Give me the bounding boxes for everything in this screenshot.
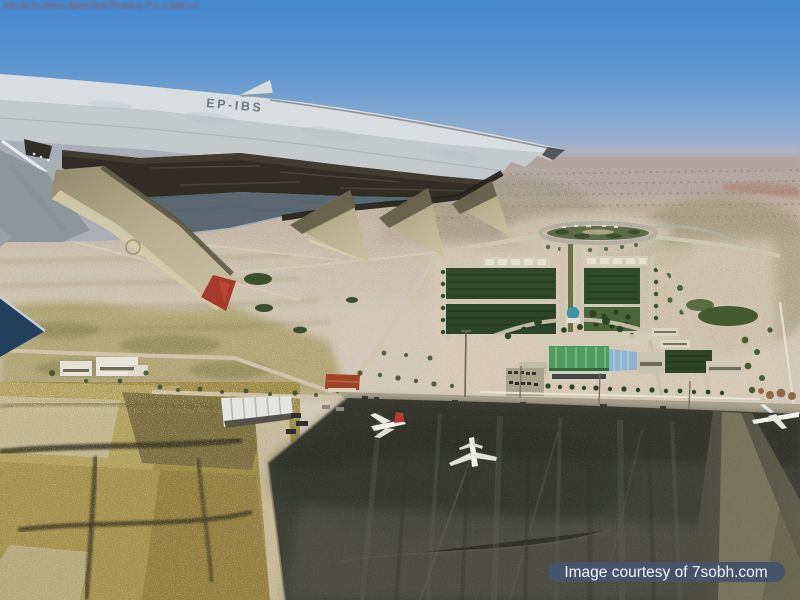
svg-text:Iran Air An Airbus Spent Over: Iran Air An Airbus Spent Over Photos p. … bbox=[4, 1, 198, 10]
svg-text:Image courtesy of 7sobh.com: Image courtesy of 7sobh.com bbox=[564, 564, 767, 581]
